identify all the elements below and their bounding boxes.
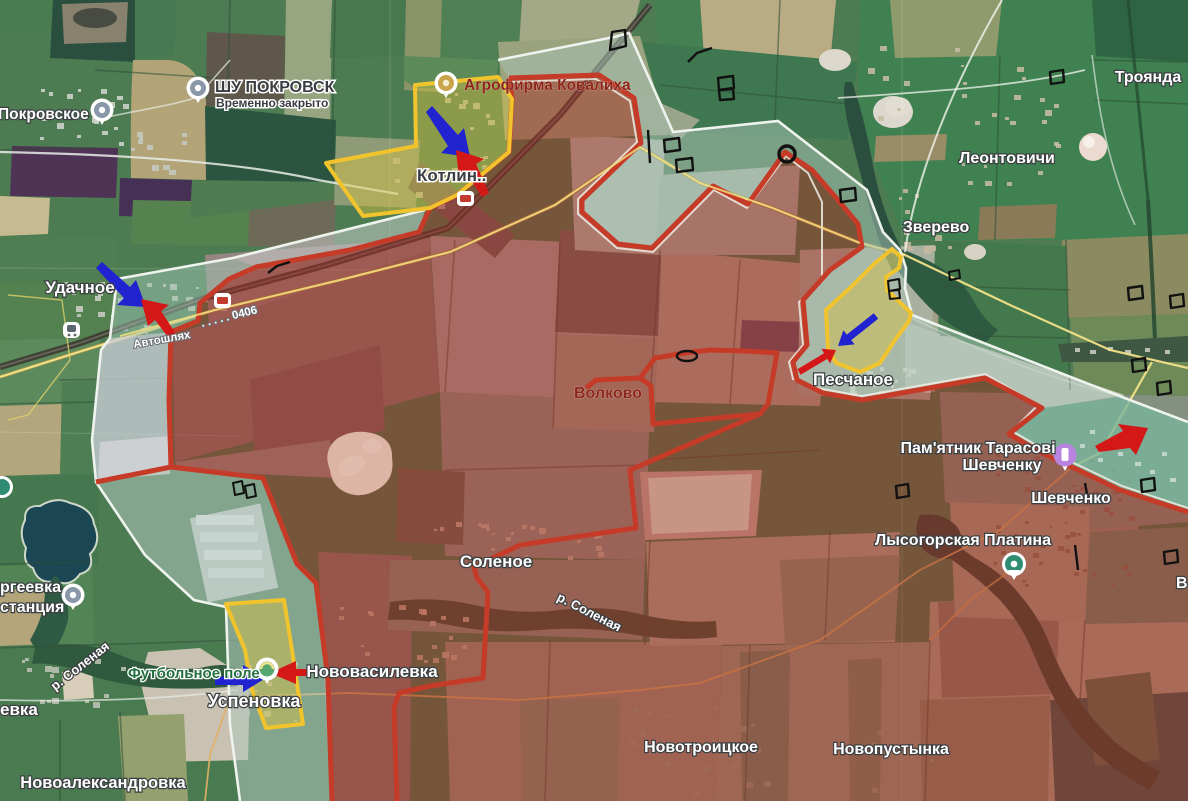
svg-text:Троянда: Троянда xyxy=(1115,69,1182,86)
svg-text:Лысогорская Платина: Лысогорская Платина xyxy=(875,532,1051,549)
svg-text:евка: евка xyxy=(0,700,38,719)
svg-text:Леонтовичи: Леонтовичи xyxy=(959,150,1055,167)
svg-text:В: В xyxy=(1176,575,1188,592)
svg-text:Успеновка: Успеновка xyxy=(208,691,302,711)
svg-text:Удачное: Удачное xyxy=(45,278,114,297)
svg-text:Котлин..: Котлин.. xyxy=(417,166,486,185)
svg-text:Покровское: Покровское xyxy=(0,106,89,123)
svg-text:Новоалександровка: Новоалександровка xyxy=(20,774,186,792)
svg-text:Зверево: Зверево xyxy=(903,219,970,236)
svg-text:Шевченко: Шевченко xyxy=(1031,490,1111,507)
svg-text:станция: станция xyxy=(0,599,64,616)
svg-text:Волково: Волково xyxy=(574,385,642,402)
svg-text:Нововасилевка: Нововасилевка xyxy=(306,662,438,681)
svg-text:ШУ ПОКРОВСК: ШУ ПОКРОВСК xyxy=(215,79,335,96)
svg-text:Новотроицкое: Новотроицкое xyxy=(644,739,758,756)
svg-text:Пам'ятник Тарасові: Пам'ятник Тарасові xyxy=(900,440,1055,457)
svg-text:Футбольное поле: Футбольное поле xyxy=(128,665,260,682)
svg-text:Соленое: Соленое xyxy=(460,552,532,571)
svg-text:Новопустынка: Новопустынка xyxy=(833,741,949,758)
svg-text:Песчаное: Песчаное xyxy=(813,370,893,389)
svg-text:Агрофирма Ковалиха: Агрофирма Ковалиха xyxy=(464,77,631,94)
svg-text:ргеевка: ргеевка xyxy=(0,579,61,596)
svg-text:Шевченку: Шевченку xyxy=(963,457,1042,474)
svg-text:Временно закрыто: Временно закрыто xyxy=(216,96,328,110)
